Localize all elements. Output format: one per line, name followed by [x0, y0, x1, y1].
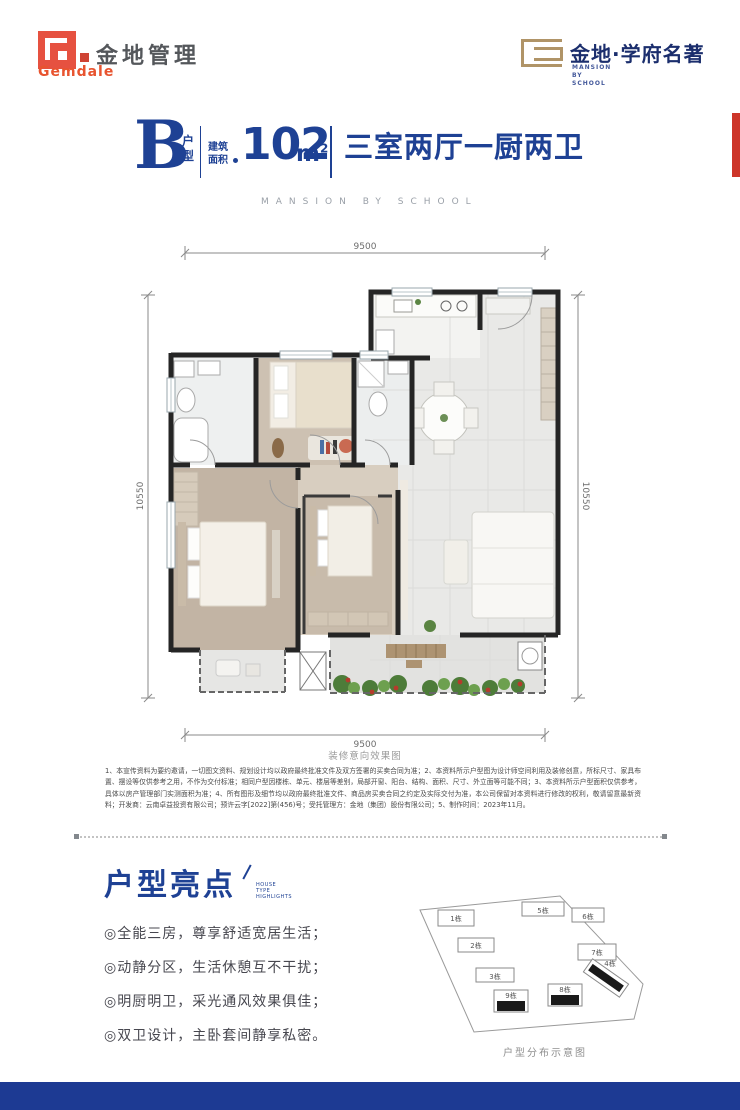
title-divider-1: [200, 126, 201, 178]
highlights-list: ◎全能三房，尊享舒适宽居生活； ◎动静分区，生活休憩互不干扰； ◎明厨明卫，采光…: [104, 926, 384, 1062]
title-subtitle-en: MANSION BY SCHOOL: [261, 197, 478, 207]
highlight-item: ◎动静分区，生活休憩互不干扰；: [104, 960, 384, 977]
svg-text:3栋: 3栋: [489, 972, 500, 981]
svg-text:4栋: 4栋: [604, 959, 615, 968]
highlight-item: ◎全能三房，尊享舒适宽居生活；: [104, 926, 384, 943]
dim-left-label: 10550: [136, 481, 146, 510]
svg-text:5栋: 5栋: [537, 906, 548, 915]
dim-right-label: 10550: [580, 482, 590, 511]
dim-bottom-label: 9500: [354, 740, 377, 750]
footer-bar: [0, 1082, 740, 1110]
gemdale-name-en: Gemdale: [38, 64, 114, 80]
highlights-slash-icon: [242, 864, 251, 879]
project-name-en: MANSION BY SCHOOL: [572, 64, 611, 88]
gemdale-logo-notch: [58, 51, 67, 60]
site-plan: 1栋 2栋 3栋 4栋 5栋 6栋 7栋 8栋 9栋: [410, 878, 700, 1054]
plan-caption: 装修意向效果图: [328, 750, 402, 762]
svg-text:9栋: 9栋: [505, 991, 516, 1000]
utility-shaft: [300, 652, 326, 690]
divider-square-right: [662, 834, 667, 839]
title-divider-2: [330, 126, 332, 178]
highlights-title: 户型亮点: [104, 860, 236, 904]
svg-text:8栋: 8栋: [559, 985, 570, 994]
legal-disclaimer: 1、本宣传资料为要约邀请，一切图文资料、规划设计均以政府最终批准文件及双方签署的…: [105, 766, 641, 812]
bedroom-kids: [270, 362, 354, 460]
project-name: 金地·学府名著: [570, 38, 705, 67]
highlight-item: ◎双卫设计，主卧套间静享私密。: [104, 1028, 384, 1045]
svg-text:2栋: 2栋: [470, 941, 481, 950]
highlights-subtitle-en: HOUSE TYPE HIGHLIGHTS: [256, 882, 292, 900]
dotted-divider: [80, 836, 662, 838]
poster-page: 金地管理 Gemdale 金地·学府名著 MANSION BY SCHOOL B…: [0, 0, 740, 1110]
svg-text:6栋: 6栋: [582, 912, 593, 921]
floor-plan: 9500 9500 10550 10550 装修意向效果图: [130, 240, 600, 762]
red-accent-bar: [732, 113, 740, 177]
room-description: 三室两厅一厨两卫: [344, 124, 584, 170]
svg-text:1栋: 1栋: [450, 914, 461, 923]
highlight-item: ◎明厨明卫，采光通风效果俱佳；: [104, 994, 384, 1011]
divider-square-left: [74, 834, 79, 839]
unit-type-label: 户型: [182, 134, 196, 164]
area-label: 建筑面积: [208, 141, 230, 167]
svg-text:7栋: 7栋: [591, 948, 602, 957]
site-plan-caption: 户型分布示意图: [430, 1044, 660, 1059]
area-dot-icon: [233, 158, 238, 163]
gemdale-logo-dot: [80, 53, 89, 62]
project-logo-icon-inner: [534, 47, 563, 61]
dim-top-label: 9500: [354, 242, 377, 252]
area-unit: m2: [296, 141, 328, 167]
